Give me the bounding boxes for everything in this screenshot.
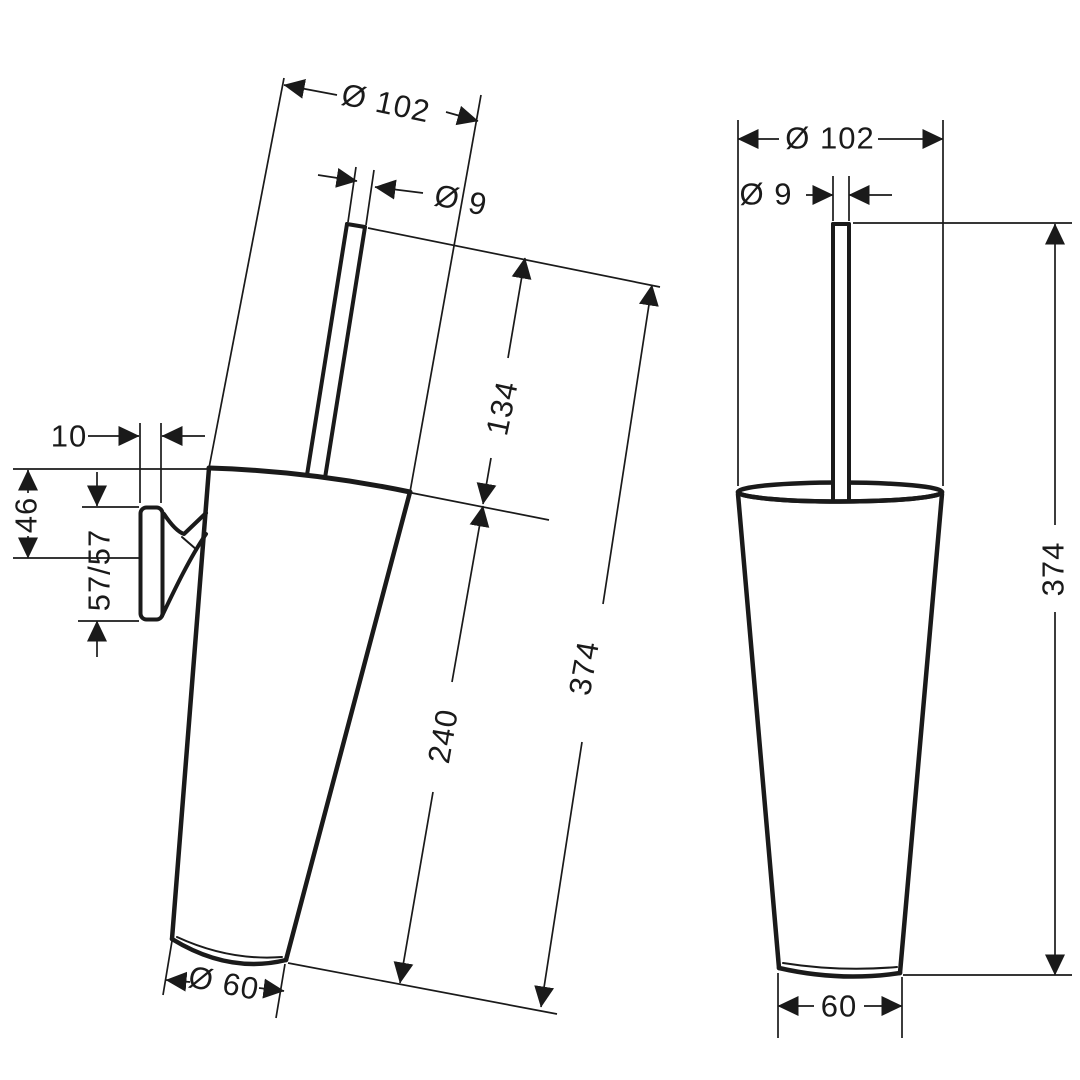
right-dimension-lines bbox=[738, 139, 1055, 1006]
dim-line-134-upper bbox=[508, 258, 525, 358]
handle-top-cap bbox=[347, 224, 365, 227]
left-dim-handle-diameter: Ø 9 bbox=[431, 177, 490, 222]
dim-line-240-lower bbox=[400, 792, 433, 983]
extension-line-top-dia-right bbox=[410, 95, 481, 492]
right-dim-handle-diameter: Ø 9 bbox=[740, 177, 793, 212]
left-dim-rim-to-bracket: 46 bbox=[9, 497, 44, 533]
dim-line-374-upper bbox=[603, 285, 652, 604]
left-dim-top-diameter: Ø 102 bbox=[339, 77, 434, 130]
brush-holder-front-view bbox=[738, 224, 942, 977]
container-left-wall bbox=[738, 494, 779, 968]
dim-line-134-lower bbox=[483, 458, 491, 504]
dim-line-top-dia-right-arrow bbox=[446, 112, 478, 121]
right-dim-top-diameter: Ø 102 bbox=[785, 121, 874, 156]
container-right-wall bbox=[900, 494, 942, 973]
right-view: Ø 102 Ø 9 374 60 bbox=[738, 120, 1072, 1038]
container-bottom-inner-line bbox=[783, 963, 897, 969]
dim-line-top-dia-left-arrow bbox=[284, 85, 337, 95]
left-dimension-lines bbox=[28, 85, 652, 1007]
extension-line-top-dia-left bbox=[209, 78, 284, 468]
wall-bracket-plate bbox=[141, 508, 163, 620]
container-bottom-inner-line bbox=[177, 937, 282, 958]
dim-line-handle-dia-right-arrow bbox=[375, 187, 423, 193]
left-dim-total-height: 374 bbox=[562, 638, 606, 698]
dim-line-bottom-dia-left-arrow bbox=[166, 980, 190, 982]
container-right-wall bbox=[286, 492, 410, 960]
reference-line-base bbox=[288, 963, 557, 1014]
handle-right-edge bbox=[325, 227, 365, 478]
dim-line-handle-dia-left-arrow bbox=[318, 175, 357, 181]
extension-line-handle-right bbox=[366, 170, 374, 225]
left-view: Ø 102 Ø 9 134 240 374 Ø 60 10 46 57/57 bbox=[9, 77, 661, 1018]
left-dim-bracket-plate: 57/57 bbox=[82, 529, 117, 612]
dim-line-240-upper bbox=[452, 506, 483, 682]
handle-left-edge bbox=[307, 224, 347, 475]
reference-line-handle-top bbox=[368, 228, 660, 287]
wall-bracket-arm-joint bbox=[182, 537, 197, 550]
right-dim-total-height: 374 bbox=[1036, 542, 1071, 597]
technical-drawing: Ø 102 Ø 9 134 240 374 Ø 60 10 46 57/57 bbox=[0, 0, 1080, 1080]
left-dim-handle-length: 134 bbox=[479, 378, 525, 439]
dim-line-374-lower bbox=[541, 742, 582, 1007]
brush-holder-side-view bbox=[141, 224, 411, 964]
right-dim-bottom-width: 60 bbox=[821, 989, 857, 1024]
extension-line-bottom-dia-left bbox=[163, 941, 172, 995]
extension-line-handle-left bbox=[348, 167, 356, 222]
wall-bracket-arm-top bbox=[164, 513, 206, 534]
left-dim-bracket-thickness: 10 bbox=[51, 419, 87, 454]
drawing-page: Ø 102 Ø 9 134 240 374 Ø 60 10 46 57/57 bbox=[0, 0, 1080, 1080]
left-dim-container-height: 240 bbox=[421, 706, 465, 766]
right-dimension-labels: Ø 102 Ø 9 374 60 bbox=[740, 121, 1071, 1024]
left-dimension-labels: Ø 102 Ø 9 134 240 374 Ø 60 10 46 57/57 bbox=[9, 77, 606, 1007]
